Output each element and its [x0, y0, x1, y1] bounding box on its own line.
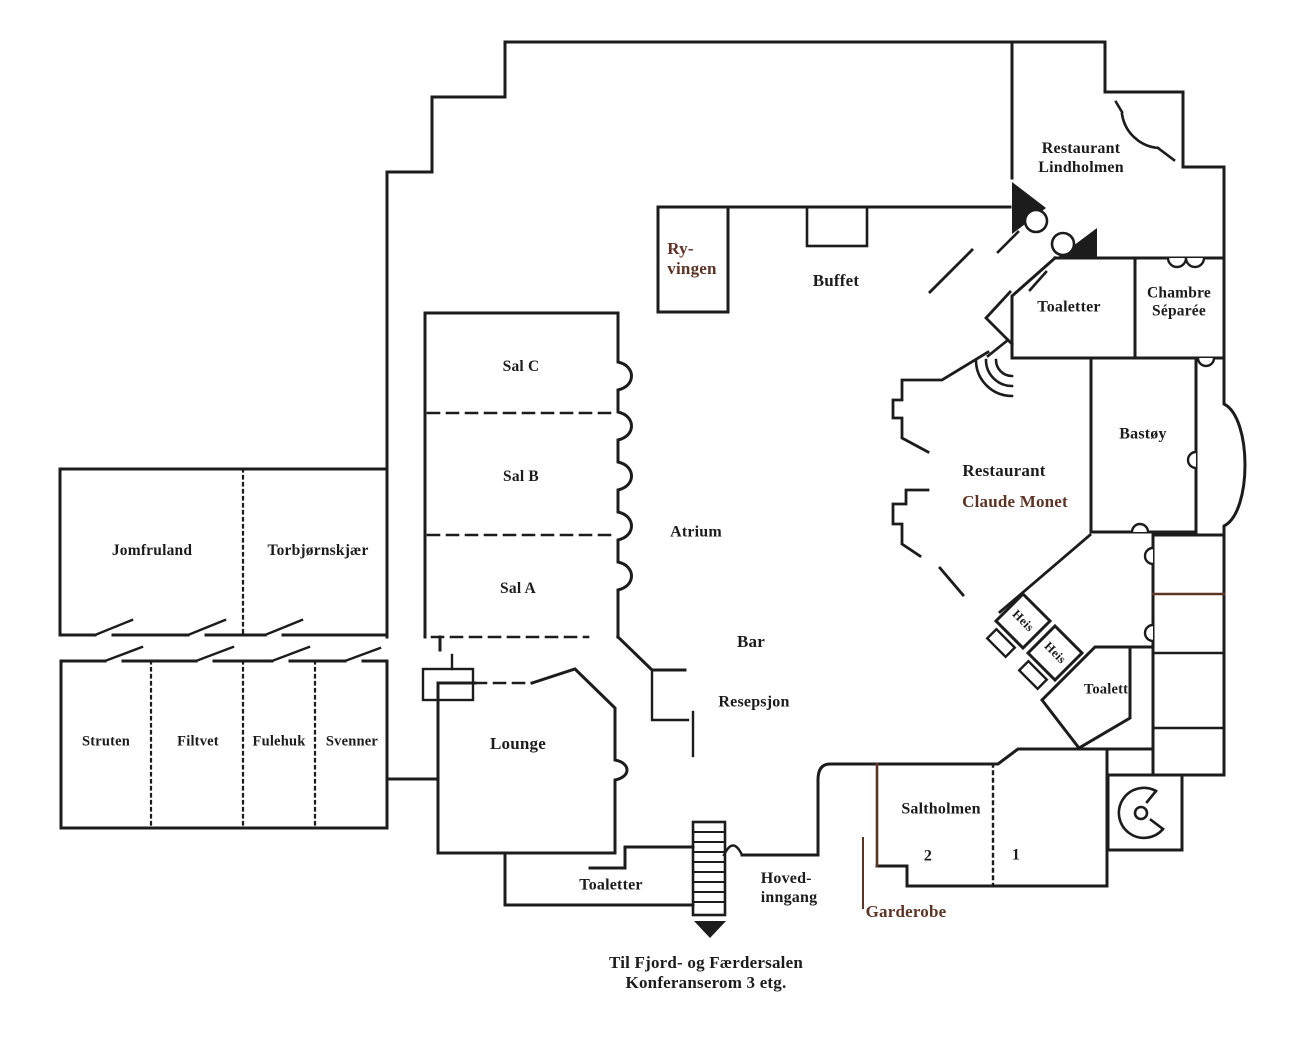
- down-arrow-icon: [694, 921, 726, 938]
- label-toalett: Toalett: [1084, 681, 1128, 698]
- door-swing-icon: [1116, 102, 1174, 160]
- spiral-staircase-icon: [1119, 788, 1163, 838]
- door-swing-icon: [1132, 524, 1148, 532]
- label-garderobe: Garderobe: [866, 902, 947, 922]
- label-resepsjon: Resepsjon: [718, 694, 789, 713]
- floor-plan: Restaurant Lindholmen Ry- vingen Buffet …: [0, 0, 1310, 1049]
- label-svenner: Svenner: [326, 733, 378, 750]
- door-swing-icon: [724, 846, 742, 856]
- conference-halls-walls: [425, 313, 685, 670]
- label-saltholmen-2: 2: [924, 848, 932, 867]
- spiral-staircase-icon: [1135, 807, 1147, 819]
- door-swing-icon: [1168, 258, 1204, 267]
- folding-partition-icon: [618, 313, 632, 637]
- spiral-staircase-icon: [1147, 791, 1163, 829]
- label-toaletter-bottom: Toaletter: [579, 877, 642, 896]
- label-saltholmen: Saltholmen: [901, 801, 980, 820]
- label-restaurant-lindholmen: Restaurant Lindholmen: [1038, 140, 1124, 178]
- label-lounge: Lounge: [490, 734, 546, 754]
- label-atrium: Atrium: [670, 524, 722, 543]
- door-swing-icon: [1188, 452, 1196, 468]
- label-sal-c: Sal C: [503, 358, 540, 376]
- door-swing-icon: [1198, 358, 1214, 366]
- label-fulehuk: Fulehuk: [253, 733, 306, 750]
- stairs-icon: [693, 832, 725, 902]
- label-hovedinngang: Hoved- inngang: [761, 870, 818, 908]
- spiral-staircase: [1108, 775, 1182, 850]
- label-jomfruland: Jomfruland: [112, 542, 192, 560]
- revolving-door-icon: [1052, 233, 1074, 255]
- door-swing-icon: [105, 647, 380, 661]
- label-torbjornskjaer: Torbjørnskjær: [267, 542, 368, 560]
- label-buffet: Buffet: [813, 271, 860, 291]
- label-claude-monet: Claude Monet: [962, 492, 1068, 512]
- label-sal-a: Sal A: [500, 580, 536, 598]
- label-struten: Struten: [82, 733, 130, 750]
- sound-arc-icon: [976, 360, 1012, 396]
- reception-desk: [652, 670, 693, 756]
- label-chambre-separee: Chambre Séparée: [1147, 285, 1211, 322]
- label-filtvet: Filtvet: [177, 733, 219, 750]
- door-swing-icon: [95, 620, 302, 635]
- label-bar: Bar: [737, 632, 765, 652]
- buffet-counter: [807, 207, 867, 246]
- saltholmen-walls: [818, 749, 1153, 908]
- footer-note: Til Fjord- og Færdersalen Konferanserom …: [609, 953, 803, 993]
- label-bastoy: Bastøy: [1119, 426, 1166, 445]
- label-restaurant-claude-monet: Restaurant: [962, 461, 1045, 481]
- revolving-door-icon: [1025, 210, 1047, 232]
- label-ryvingen: Ry- vingen: [667, 239, 716, 279]
- label-sal-b: Sal B: [503, 468, 539, 486]
- label-saltholmen-1: 1: [1012, 847, 1020, 866]
- label-toaletter-top: Toaletter: [1037, 299, 1100, 318]
